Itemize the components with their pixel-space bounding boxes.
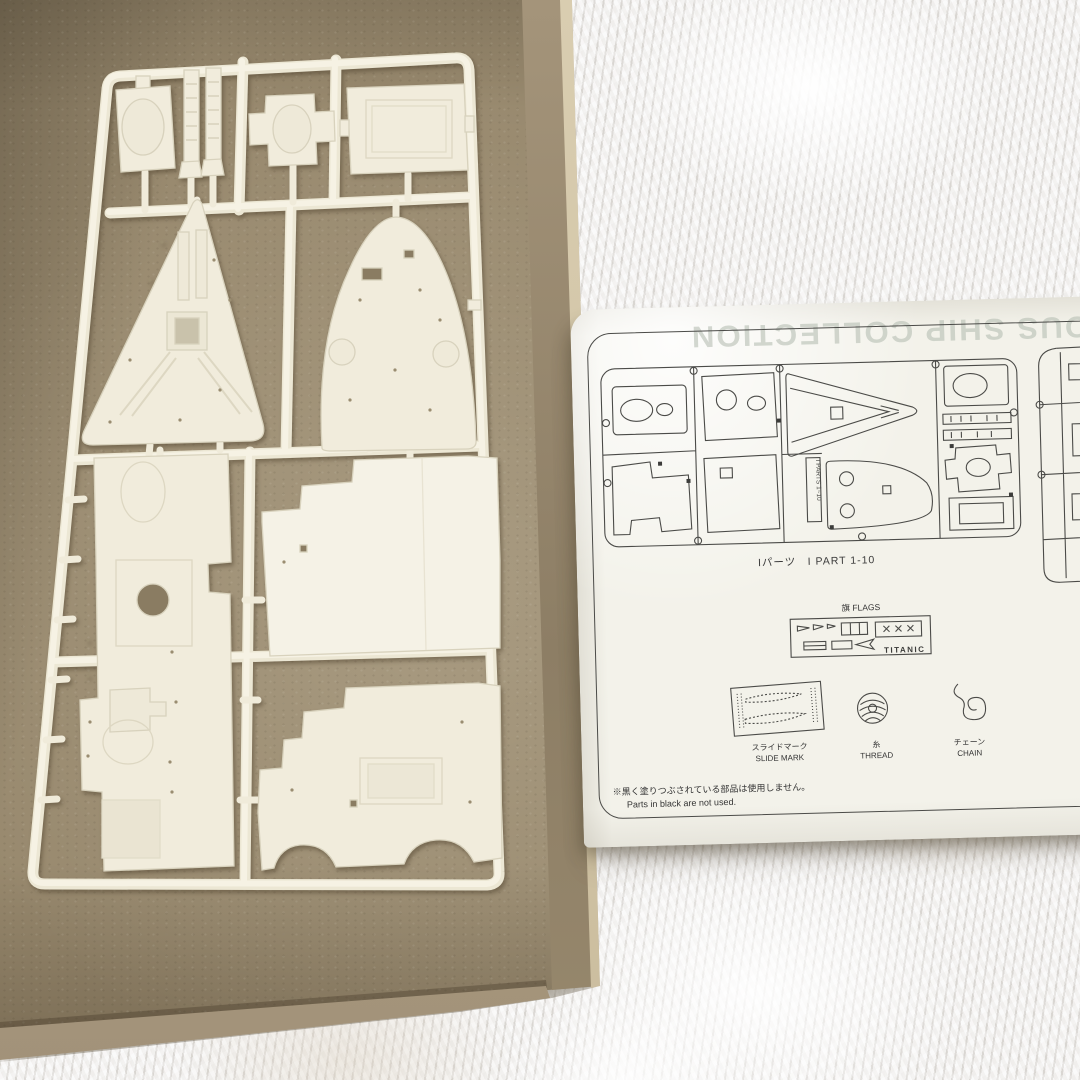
chain-caption: チェーン CHAIN: [937, 737, 1002, 760]
usage-note: ※黒く塗りつぶされている部品は使用しません。 Parts in black ar…: [612, 781, 810, 812]
shaped-panel-part: [258, 683, 502, 870]
cross-deck-part: [249, 94, 335, 166]
parts-strip-label: I PARTS 1~10: [814, 459, 822, 501]
thread-caption: 糸 THREAD: [843, 739, 910, 762]
photo-canvas: THE FAMOUS SHIP COLLECTION I PARTS 1~10: [0, 0, 1080, 1080]
parts-diagram-2: [1026, 342, 1080, 590]
chain-icon: [948, 681, 995, 726]
slide-mark-caption: スライドマーク SLIDE MARK: [721, 741, 838, 766]
bridge-deck-part: [116, 76, 175, 172]
slide-mark-decal-icon: [729, 679, 829, 742]
flags-decal-box: TITANIC: [789, 612, 932, 660]
ladder-strip-parts: [179, 68, 224, 178]
stern-deck-part: [321, 217, 481, 451]
parts-diagram-1: I PARTS 1~10: [597, 352, 1030, 553]
deck-panel-part: [340, 84, 474, 174]
titanic-label: TITANIC: [884, 645, 926, 655]
thread-spool-icon: [852, 688, 893, 729]
long-deck-part: [80, 454, 234, 871]
instruction-sheet: THE FAMOUS SHIP COLLECTION I PARTS 1~10: [570, 295, 1080, 848]
bow-deck-part: [82, 200, 264, 445]
flat-panel-part: [262, 456, 500, 656]
